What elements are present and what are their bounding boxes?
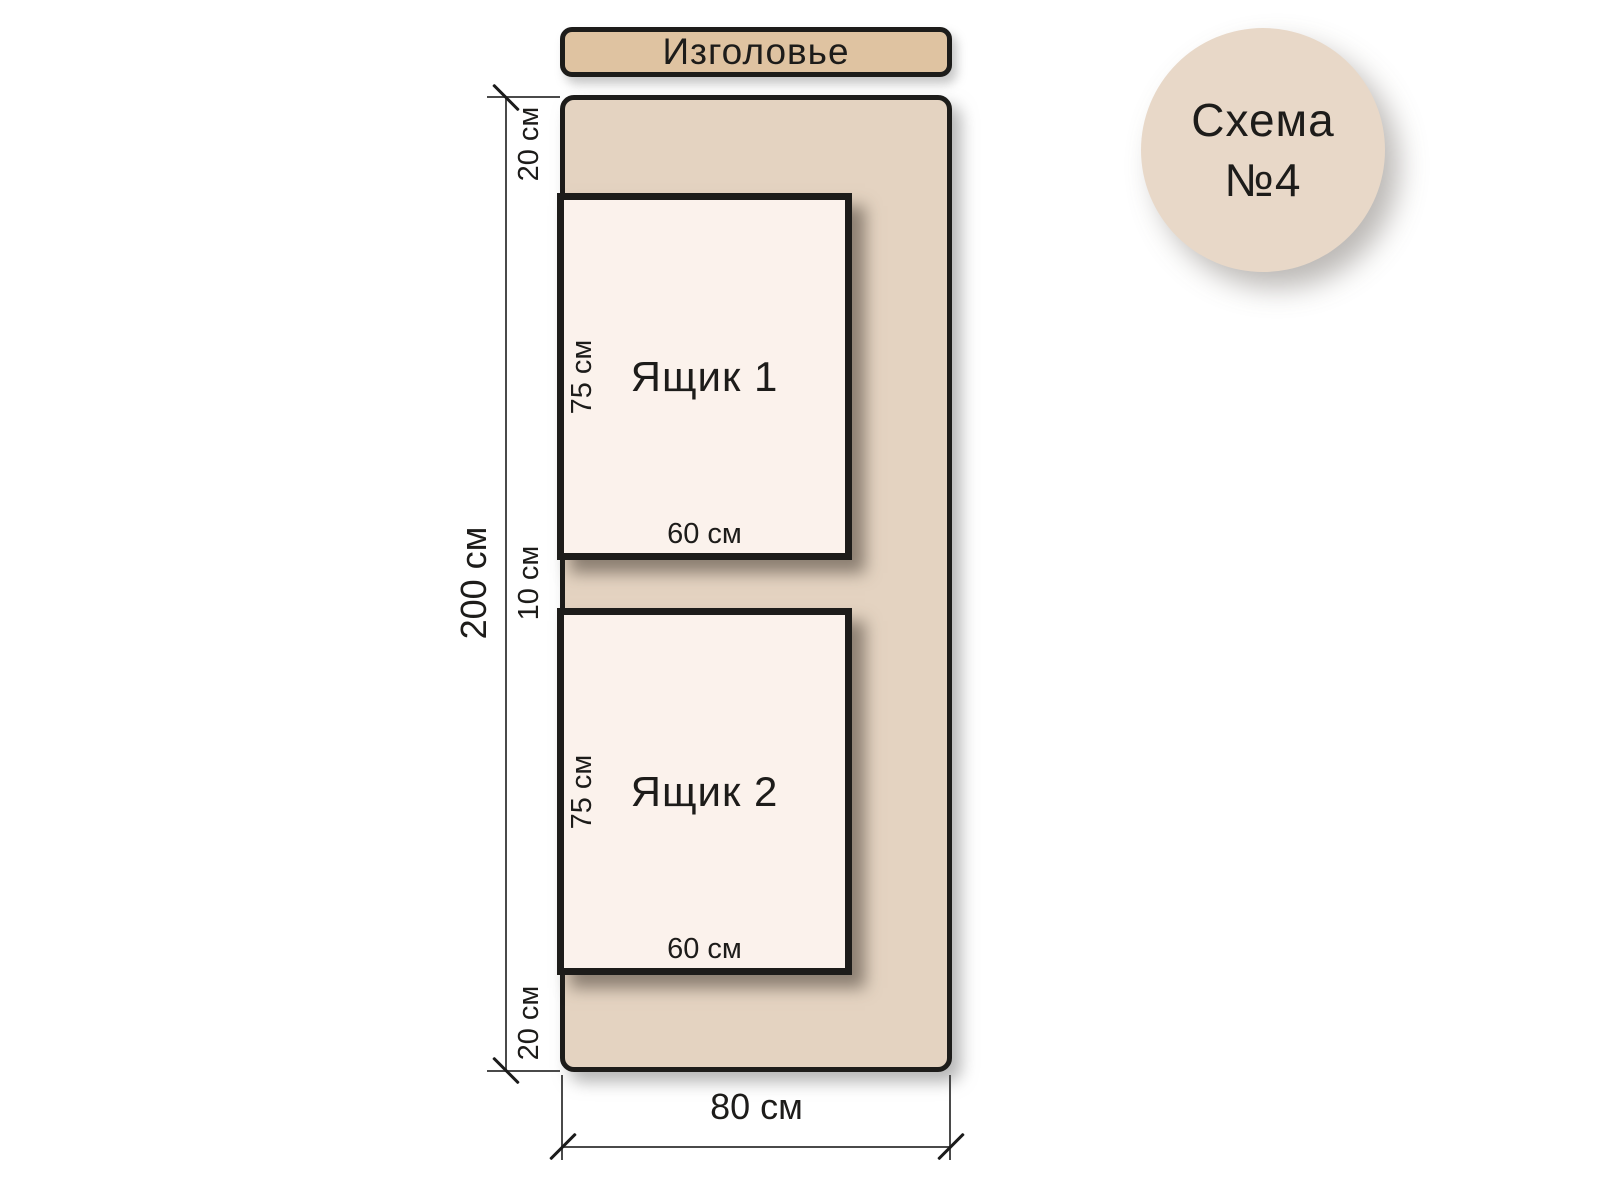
total-height-label: 200 см bbox=[453, 503, 495, 663]
scheme-canvas: Изголовье Ящик 1 75 см 60 см Ящик 2 75 с… bbox=[0, 0, 1600, 1200]
drawer-1-shape: Ящик 1 75 см 60 см bbox=[557, 193, 852, 560]
drawer-1-height-label: 75 см bbox=[565, 317, 599, 437]
gap-label: 10 см bbox=[512, 523, 546, 643]
top-margin-label: 20 см bbox=[512, 84, 546, 204]
scheme-badge: Схема №4 bbox=[1141, 28, 1385, 272]
scheme-badge-line1: Схема bbox=[1191, 90, 1335, 150]
scheme-badge-line2: №4 bbox=[1225, 150, 1302, 210]
width-dimension-line bbox=[562, 1146, 951, 1148]
drawer-2-height-label: 75 см bbox=[565, 732, 599, 852]
drawer-1-width-label: 60 см bbox=[564, 518, 845, 550]
drawer-1-label: Ящик 1 bbox=[631, 353, 779, 401]
headboard-label: Изголовье bbox=[662, 31, 849, 73]
drawer-2-label: Ящик 2 bbox=[631, 768, 779, 816]
total-width-label: 80 см bbox=[562, 1086, 951, 1128]
bottom-margin-label: 20 см bbox=[512, 963, 546, 1083]
height-dimension-line bbox=[505, 97, 507, 1071]
drawer-2-width-label: 60 см bbox=[564, 933, 845, 965]
drawer-2-shape: Ящик 2 75 см 60 см bbox=[557, 608, 852, 975]
headboard-shape: Изголовье bbox=[560, 27, 952, 77]
